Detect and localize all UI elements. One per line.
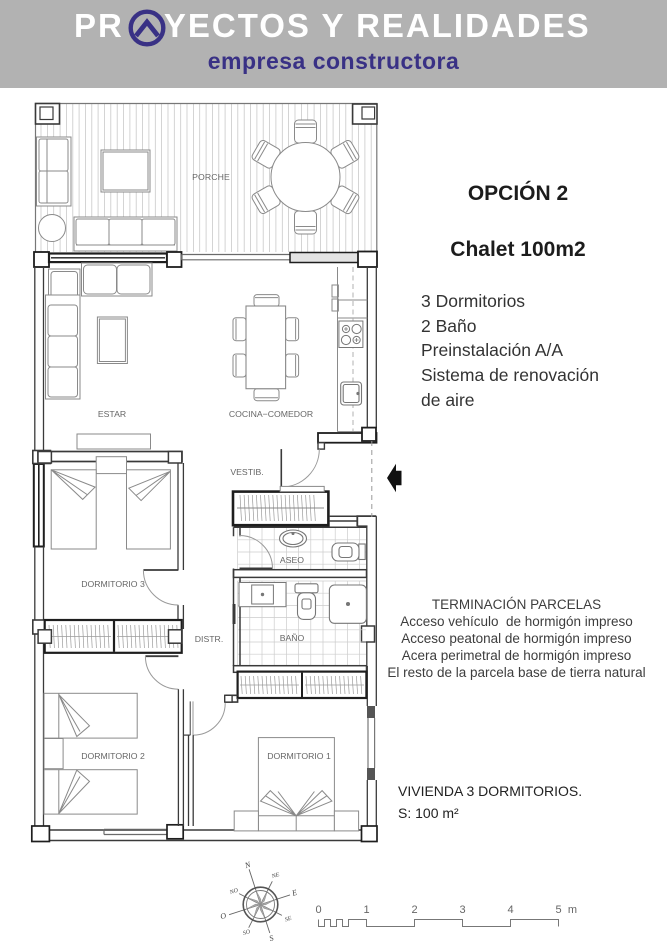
svg-text:0: 0 [315, 904, 321, 916]
svg-text:5: 5 [555, 904, 561, 916]
svg-text:DISTR.: DISTR. [195, 634, 223, 644]
svg-text:4: 4 [507, 904, 513, 916]
svg-text:N: N [243, 860, 252, 871]
svg-text:DORMITORIO 1: DORMITORIO 1 [267, 751, 331, 761]
svg-text:DORMITORIO 2: DORMITORIO 2 [81, 751, 145, 761]
svg-text:2: 2 [411, 904, 417, 916]
svg-text:BAÑO: BAÑO [280, 633, 305, 643]
svg-text:NO: NO [228, 888, 239, 897]
svg-text:VESTIB.: VESTIB. [230, 467, 263, 477]
svg-text:O: O [219, 911, 227, 921]
svg-text:ESTAR: ESTAR [98, 409, 126, 419]
svg-text:ASEO: ASEO [280, 555, 304, 565]
svg-text:PORCHE: PORCHE [192, 172, 230, 182]
svg-text:3: 3 [459, 904, 465, 916]
svg-text:COCINA−COMEDOR: COCINA−COMEDOR [229, 409, 313, 419]
svg-text:NE: NE [270, 872, 280, 880]
svg-text:S: S [268, 933, 275, 943]
svg-text:SE: SE [284, 916, 293, 924]
svg-text:SO: SO [242, 929, 251, 937]
svg-text:DORMITORIO 3: DORMITORIO 3 [81, 579, 145, 589]
svg-text:m: m [568, 904, 577, 916]
svg-text:1: 1 [363, 904, 369, 916]
svg-text:E: E [290, 888, 298, 898]
